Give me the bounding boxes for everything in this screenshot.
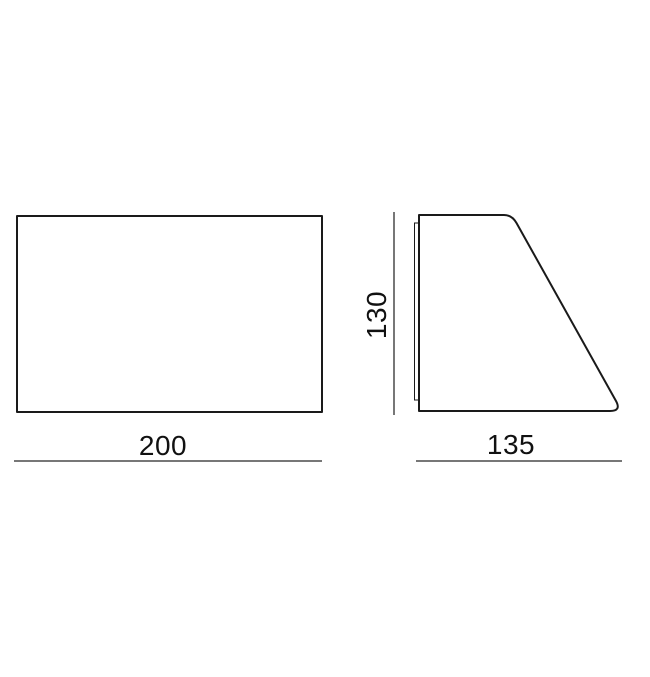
front-width-dim-label: 200 (139, 430, 187, 461)
side-view-outline (419, 215, 618, 411)
front-view-outline (17, 216, 322, 412)
front-view: 200 (14, 216, 322, 461)
side-view: 130 135 (361, 212, 622, 461)
drawing-canvas: 200 130 135 (0, 0, 650, 677)
technical-drawing: 200 130 135 (0, 0, 650, 677)
side-depth-dim-label: 135 (487, 429, 535, 460)
side-height-dim-label: 130 (361, 291, 392, 339)
